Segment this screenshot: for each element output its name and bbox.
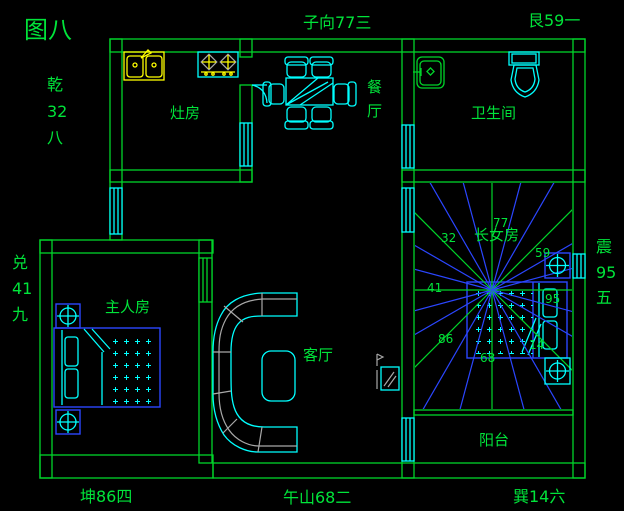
- tv-icon: [377, 354, 399, 390]
- label-zhen: 震: [596, 237, 612, 256]
- windows: [110, 85, 585, 461]
- wall-center-vertical: [402, 39, 414, 478]
- floor-plan-canvas[interactable]: 图八 乾 32 八 子向77三 艮59一 兑 41 九 震 95 五 坤86四 …: [0, 0, 624, 511]
- wall-kitchen-bottom: [110, 170, 252, 182]
- floor-plan-drawing: 图八 乾 32 八 子向77三 艮59一 兑 41 九 震 95 五 坤86四 …: [0, 0, 624, 511]
- coffee-table: [262, 351, 295, 401]
- compass-fan-line: [308, 106, 492, 290]
- dining-chair: [310, 57, 333, 77]
- dining-chair: [285, 107, 308, 129]
- window-kitchen: [240, 123, 252, 166]
- wall-top: [110, 39, 585, 52]
- room-label-dining-1: 餐: [367, 78, 382, 96]
- wall-left-lower: [40, 240, 52, 478]
- mattress-dots: [108, 336, 157, 404]
- compass-fan-line: [362, 65, 492, 290]
- label-zhen-num: 95: [596, 263, 616, 282]
- compass-num-68: 68: [480, 351, 495, 365]
- wall-master-top: [40, 240, 213, 253]
- label-dui: 兑: [12, 253, 28, 272]
- pillow: [65, 369, 78, 398]
- wall-bottom-right: [213, 463, 585, 478]
- label-dui-num: 41: [12, 279, 32, 298]
- master-bed: [54, 328, 160, 407]
- compass-num-59: 59: [535, 246, 550, 260]
- label-zhen-char: 五: [596, 288, 612, 307]
- compass-num-77: 77: [493, 216, 508, 230]
- wall-balcony-top: [414, 410, 573, 415]
- dining-chair: [334, 82, 356, 106]
- pillow: [543, 321, 557, 349]
- room-label-living: 客厅: [303, 346, 333, 364]
- label-kun: 坤86四: [80, 487, 132, 506]
- wall-kitchen-right-a: [240, 39, 252, 57]
- kitchen-sink-icon: [124, 50, 164, 80]
- compass-num-86: 86: [438, 332, 453, 346]
- room-labels: 灶房 餐 厅 卫生间 长女房 主人房 客厅 阳台: [105, 78, 519, 449]
- lamp-symbol: [56, 410, 80, 434]
- label-qian: 乾: [47, 75, 63, 94]
- bath-sink-icon: [413, 57, 444, 88]
- compass-fan-line: [267, 160, 492, 290]
- label-wushan: 午山68二: [283, 488, 351, 507]
- figure-title: 图八: [24, 16, 72, 44]
- kitchen-door-arc: [252, 85, 267, 103]
- label-xun: 巽14六: [513, 487, 565, 506]
- burner-right: [220, 54, 236, 70]
- burner-left: [201, 54, 217, 70]
- dining-table-set: [263, 57, 356, 129]
- window-hall-left: [110, 188, 122, 234]
- window-right-wall: [573, 254, 585, 278]
- sofa: [213, 293, 297, 452]
- wall-bottom-left: [40, 455, 213, 478]
- dining-chair: [285, 57, 308, 77]
- label-dui-char: 九: [12, 305, 28, 324]
- window-daughter-room: [402, 188, 414, 232]
- compass-num-14: 14: [529, 338, 544, 352]
- compass-num-95: 95: [545, 292, 560, 306]
- dining-table-glass-lines: [286, 78, 333, 105]
- label-qian-num: 32: [47, 102, 67, 121]
- stove-icon: [198, 52, 238, 77]
- blanket-fold: [84, 329, 110, 405]
- room-label-master: 主人房: [105, 298, 150, 316]
- room-label-balcony: 阳台: [479, 431, 509, 449]
- window-balcony: [402, 418, 414, 461]
- window-master-right: [199, 258, 212, 302]
- label-facing-north: 子向77三: [303, 13, 371, 32]
- room-label-bathroom: 卫生间: [471, 104, 516, 122]
- wall-bath-bottom: [402, 170, 585, 182]
- lamp-symbol: [545, 358, 570, 384]
- label-qian-char: 八: [47, 128, 63, 147]
- tv-stand: [377, 354, 383, 389]
- compass-num-32: 32: [441, 231, 456, 245]
- perimeter-labels: 图八 乾 32 八 子向77三 艮59一 兑 41 九 震 95 五 坤86四 …: [12, 11, 616, 507]
- lamp-symbol: [56, 304, 80, 328]
- toilet-icon: [509, 52, 539, 97]
- compass-fan-line: [308, 290, 492, 474]
- room-label-dining-2: 厅: [367, 102, 382, 120]
- compass-num-41: 41: [427, 281, 442, 295]
- pillow: [65, 337, 78, 366]
- label-gen: 艮59一: [528, 11, 580, 30]
- window-bathroom: [402, 125, 414, 168]
- compass-fan-line: [425, 39, 492, 290]
- dining-chair: [310, 107, 333, 129]
- compass-fan-line: [241, 290, 492, 357]
- room-label-kitchen: 灶房: [170, 104, 200, 122]
